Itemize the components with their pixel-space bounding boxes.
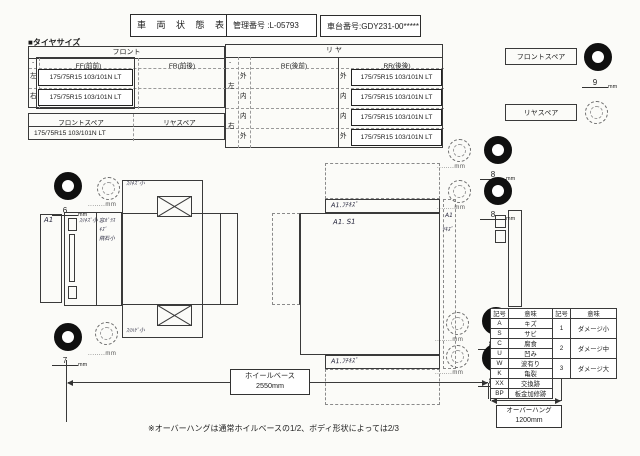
wheelbase-value: 2550mm (231, 381, 309, 391)
tire-value-rr-2: 175/75R15 103/101N LT (351, 89, 442, 106)
front-spare-depth: 9mm (582, 72, 617, 90)
legend-meaning: 板金加修跡 (509, 389, 553, 399)
front-spare-depth-value: 9 (582, 78, 608, 88)
gate-hinge-lower (495, 230, 506, 243)
legend-code: XX (491, 379, 509, 389)
legend-damage-meaning: ダメージ小 (571, 319, 617, 339)
rear-tire-table: リ ヤ - RF(後前) RR(後後) 左 右 外 内 内 外 外 内 内 外 … (225, 44, 443, 148)
tire-icon-rr4-inner (446, 345, 469, 368)
legend-code: S (491, 329, 509, 339)
rear-right-label: 右 (228, 124, 235, 131)
rear-spare-panel-label: リヤスペア (505, 104, 577, 121)
front-tire-table: フロント - FF(前前) FR(前後) 左 右 175/75R15 103/1… (28, 46, 225, 108)
tread-rr3-dashed: ........mm (435, 337, 463, 343)
tire-icon-front-top-inner (97, 177, 120, 200)
front-spare-text: フロントスペア (517, 52, 566, 62)
dots-unit: mm (105, 202, 116, 208)
tread-front-bottom-value: 7 (52, 356, 78, 366)
tire-value-rr-4: 175/75R15 103/101N LT (351, 129, 442, 146)
overhang-line (492, 400, 561, 401)
handwritten-note-bumper: A1 (44, 217, 53, 225)
rr-io-2: 内 (340, 94, 347, 101)
dots-unit: mm (454, 164, 465, 170)
wheel-x-box-top (157, 196, 192, 217)
rear-spare-tire-icon (585, 101, 608, 124)
legend-meaning: 凹み (509, 349, 553, 359)
wheelbase-label: ホイールベース (231, 370, 309, 381)
legend-code: A (491, 319, 509, 329)
cargo-floor (300, 213, 440, 355)
dots-text: ........ (88, 351, 105, 357)
tread-rr2-dashed: ........mm (437, 205, 465, 211)
legend-code: U (491, 349, 509, 359)
legend-damage-meaning: ダメージ大 (571, 359, 617, 379)
vehicle-condition-sheet: 車 両 状 態 表 管理番号 :L-05793 車台番号:GDY231-00**… (0, 0, 640, 456)
handwritten-note-bed-bottom: ｽﾘﾊｹﾞ小 (126, 329, 145, 335)
legend-header-meaning: 意味 (509, 309, 553, 319)
handwritten-note-glass-1: 窓ｶﾞﾗｽ (99, 219, 115, 225)
tread-rr2-unit: mm (506, 216, 515, 222)
cargo-front-panel (272, 213, 300, 305)
handwritten-note-bottom-rail: A1.ﾌﾁｷｽﾞ (331, 358, 358, 366)
legend-code: C (491, 339, 509, 349)
legend-meaning: サビ (509, 329, 553, 339)
legend-damage-code: 3 (553, 359, 571, 379)
handwritten-note-gate-1: A1 (445, 213, 453, 220)
handwritten-note-cab-window: ｽﾘｷｽﾞ小 (79, 219, 98, 225)
page-title: 車 両 状 態 表 (130, 14, 227, 37)
tire-value-rr-1: 175/75R15 103/101N LT (351, 69, 442, 86)
tread-rr2-value: 8 (480, 210, 506, 220)
legend-code: BP (491, 389, 509, 399)
dots-unit: mm (105, 351, 116, 357)
cab-pillar (69, 234, 75, 282)
handwritten-note-glass-3: 飛石小 (99, 237, 115, 243)
front-spare-panel-label: フロントスペア (505, 48, 577, 65)
rr-io-4: 外 (340, 134, 347, 141)
dots-text: ........ (88, 202, 105, 208)
front-right-label: 右 (30, 94, 37, 101)
legend-meaning: キズ (509, 319, 553, 329)
overhang-footnote: ※オーバーハングは通常ホイルベースの1/2、ボディ形状によっては2/3 (148, 423, 399, 434)
tire-icon-rr1-inner (448, 139, 471, 162)
tire-icon-rr1 (484, 136, 512, 164)
rr-io-1: 外 (340, 74, 347, 81)
spare-rear-header: リヤスペア (133, 117, 226, 127)
dots-unit: mm (452, 370, 463, 376)
legend-code: K (491, 369, 509, 379)
spare-front-value: 175/75R15 103/101N LT (34, 131, 106, 138)
spare-front-header: フロントスペア (29, 117, 133, 127)
handwritten-note-gate-2: ﾂｷｽﾞ (442, 227, 453, 233)
rf-io-2: 内 (240, 94, 247, 101)
rf-io-3: 内 (240, 114, 247, 121)
control-number: 管理番号 :L-05793 (226, 14, 317, 37)
tread-front-bottom-unit: mm (78, 362, 87, 368)
dots-text: ........ (437, 205, 454, 211)
legend-damage-code: 2 (553, 339, 571, 359)
cargo-rear-gate (443, 199, 456, 369)
chassis-number: 車台番号:GDY231-00***** (320, 15, 421, 37)
wheelbase-box: ホイールベース 2550mm (230, 369, 310, 395)
dots-unit: mm (454, 205, 465, 211)
tire-icon-front-top (54, 172, 82, 200)
rf-io-1: 外 (240, 74, 247, 81)
handwritten-note-glass-2: ｷｽﾞ (99, 228, 107, 234)
dots-text: ........ (437, 164, 454, 170)
tread-front-bottom-dashed: ........mm (88, 351, 116, 357)
tire-value-front-left: 175/75R15 103/101N LT (38, 69, 133, 86)
overhang-box: オーバーハング 1200mm (496, 405, 562, 428)
legend-code: W (491, 359, 509, 369)
tire-icon-front-bottom (54, 323, 82, 351)
tire-icon-rr3-inner (446, 312, 469, 335)
legend-meaning: 波有り (509, 359, 553, 369)
rr-io-3: 内 (340, 114, 347, 121)
tread-front-bottom: 7mm (52, 350, 87, 368)
tire-icon-rr2 (484, 177, 512, 205)
front-spare-tire-icon (584, 43, 612, 71)
front-stub: - (32, 60, 34, 67)
legend-meaning: 腐食 (509, 339, 553, 349)
dots-unit: mm (452, 337, 463, 343)
legend-damage-meaning: ダメージ中 (571, 339, 617, 359)
handwritten-note-bed-top: ｽﾘｷｽﾞ小 (126, 182, 145, 188)
overhang-value: 1200mm (497, 416, 561, 425)
tread-rr4-dashed: ........mm (435, 370, 463, 376)
cargo-bottom-flap (325, 369, 440, 405)
tread-rr2: 8mm (480, 204, 515, 222)
legend-meaning: 亀裂 (509, 369, 553, 379)
spare-tire-table: フロントスペア リヤスペア 175/75R15 103/101N LT (28, 113, 225, 140)
front-left-label: 左 (30, 74, 37, 81)
rf-io-4: 外 (240, 134, 247, 141)
overhang-label: オーバーハング (497, 406, 561, 416)
rear-gate-panel (508, 210, 522, 307)
rear-spare-text: リヤスペア (524, 108, 559, 118)
rear-left-label: 左 (228, 84, 235, 91)
wheel-x-box-bottom (157, 305, 192, 326)
fr-column-header: FR(前後) (138, 60, 226, 70)
legend-meaning: 交換跡 (509, 379, 553, 389)
tread-front-top-dashed: ........mm (88, 202, 116, 208)
dots-text: ........ (435, 370, 452, 376)
cargo-top-flap (325, 163, 440, 199)
tire-value-front-right: 175/75R15 103/101N LT (38, 89, 133, 106)
cab-window-upper (68, 218, 77, 231)
handwritten-note-top-rail: A1.ﾌﾁｷｽﾞ (331, 202, 358, 210)
tire-value-rr-3: 175/75R15 103/101N LT (351, 109, 442, 126)
damage-legend-table: 記号 意味 記号 意味 A キズ 1 ダメージ小 S サビ C 腐食 2 ダメー… (490, 308, 617, 399)
rear-stub: - (229, 60, 231, 67)
legend-header-code2: 記号 (553, 309, 571, 319)
cab-window-lower (68, 286, 77, 299)
dots-text: ........ (435, 337, 452, 343)
truck-front-bumper (40, 214, 62, 303)
tread-rr1-dashed: ........mm (437, 164, 465, 170)
legend-header-meaning2: 意味 (571, 309, 617, 319)
legend-damage-code: 1 (553, 319, 571, 339)
legend-header-code: 記号 (491, 309, 509, 319)
front-spare-depth-unit: mm (608, 84, 617, 90)
handwritten-note-floor: A1. S1 (333, 219, 356, 227)
tire-icon-front-bottom-inner (95, 322, 118, 345)
tire-icon-rr2-inner (448, 180, 471, 203)
